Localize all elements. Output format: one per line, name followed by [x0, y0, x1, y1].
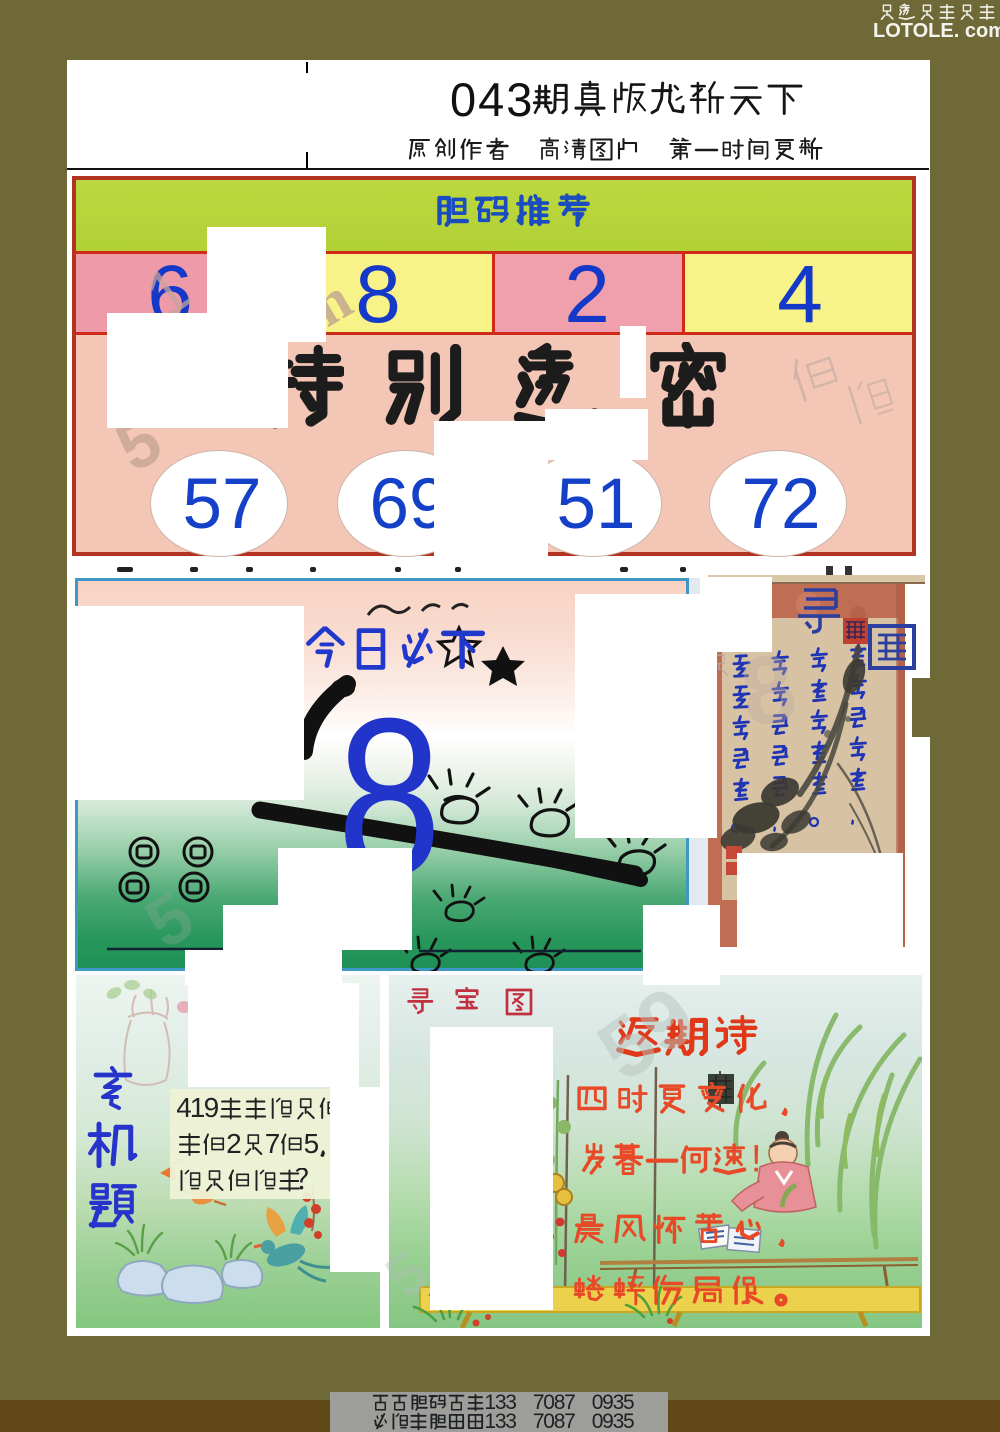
svg-text:5: 5: [304, 1132, 320, 1157]
svg-text:？: ？: [295, 1168, 316, 1193]
svg-text:9: 9: [204, 1096, 220, 1121]
svg-text:5: 5: [623, 1393, 634, 1412]
svg-text:!: !: [751, 1143, 762, 1177]
svg-text:3: 3: [505, 1412, 517, 1431]
svg-text:7: 7: [564, 1412, 576, 1431]
svg-text:3: 3: [505, 1393, 517, 1412]
svg-text:2: 2: [226, 1132, 242, 1157]
svg-text:5: 5: [623, 1412, 634, 1431]
svg-text:7: 7: [265, 1132, 281, 1157]
svg-text:7: 7: [564, 1393, 576, 1412]
